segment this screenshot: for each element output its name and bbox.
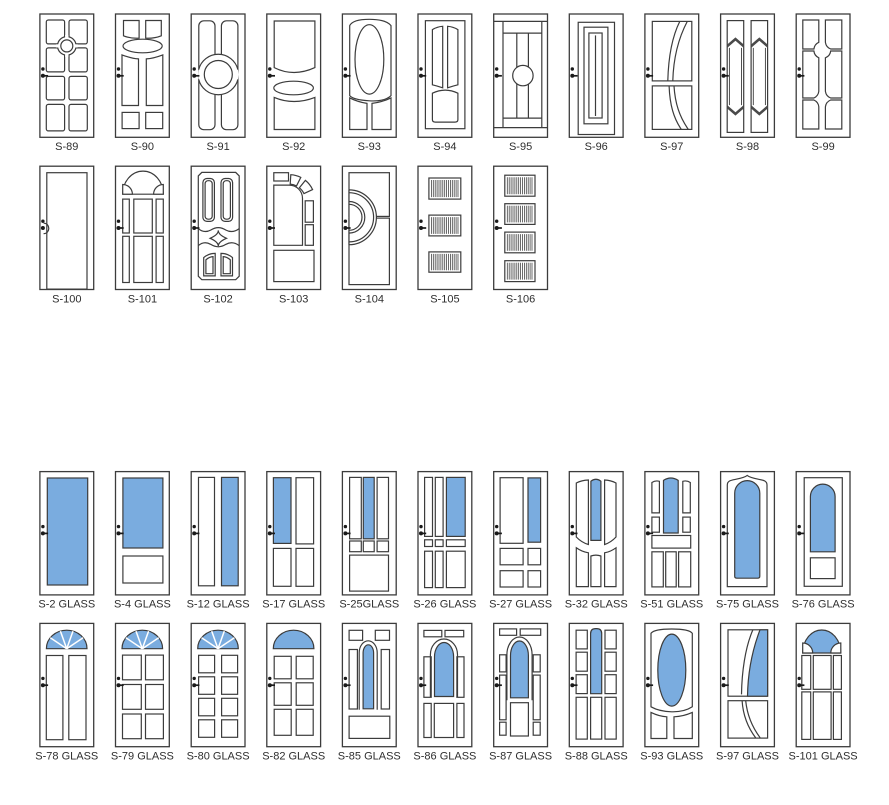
svg-text:S-12 GLASS: S-12 GLASS — [187, 599, 250, 611]
svg-text:S-82 GLASS: S-82 GLASS — [262, 751, 325, 763]
svg-text:S-76 GLASS: S-76 GLASS — [792, 599, 855, 611]
svg-text:S-95: S-95 — [509, 141, 532, 153]
svg-text:S-93 GLASS: S-93 GLASS — [640, 751, 703, 763]
svg-text:S-26 GLASS: S-26 GLASS — [413, 599, 476, 611]
svg-text:S-105: S-105 — [430, 293, 459, 305]
svg-text:S-87 GLASS: S-87 GLASS — [489, 751, 552, 763]
svg-text:S-98: S-98 — [736, 141, 759, 153]
svg-text:S-96: S-96 — [585, 141, 608, 153]
svg-text:S-104: S-104 — [355, 293, 384, 305]
svg-text:S-102: S-102 — [203, 293, 232, 305]
svg-text:S-92: S-92 — [282, 141, 305, 153]
svg-text:S-101: S-101 — [128, 293, 157, 305]
svg-text:S-89: S-89 — [55, 141, 78, 153]
svg-text:S-97: S-97 — [660, 141, 683, 153]
svg-text:S-99: S-99 — [811, 141, 834, 153]
svg-text:S-97 GLASS: S-97 GLASS — [716, 751, 779, 763]
svg-text:S-103: S-103 — [279, 293, 308, 305]
svg-text:S-86 GLASS: S-86 GLASS — [413, 751, 476, 763]
svg-text:S-25GLASS: S-25GLASS — [339, 599, 399, 611]
svg-text:S-27 GLASS: S-27 GLASS — [489, 599, 552, 611]
svg-text:S-80 GLASS: S-80 GLASS — [187, 751, 250, 763]
svg-text:S-94: S-94 — [433, 141, 456, 153]
svg-text:S-100: S-100 — [52, 293, 81, 305]
svg-text:S-88 GLASS: S-88 GLASS — [565, 751, 628, 763]
svg-text:S-79 GLASS: S-79 GLASS — [111, 751, 174, 763]
svg-text:S-91: S-91 — [206, 141, 229, 153]
svg-text:S-32 GLASS: S-32 GLASS — [565, 599, 628, 611]
svg-text:S-93: S-93 — [358, 141, 381, 153]
svg-text:S-106: S-106 — [506, 293, 535, 305]
svg-text:S-101 GLASS: S-101 GLASS — [789, 751, 858, 763]
svg-text:S-17 GLASS: S-17 GLASS — [262, 599, 325, 611]
svg-text:S-2 GLASS: S-2 GLASS — [38, 599, 95, 611]
svg-text:S-78 GLASS: S-78 GLASS — [35, 751, 98, 763]
svg-text:S-85 GLASS: S-85 GLASS — [338, 751, 401, 763]
svg-text:S-90: S-90 — [131, 141, 154, 153]
svg-text:S-51 GLASS: S-51 GLASS — [640, 599, 703, 611]
svg-text:S-4 GLASS: S-4 GLASS — [114, 599, 171, 611]
svg-text:S-75 GLASS: S-75 GLASS — [716, 599, 779, 611]
